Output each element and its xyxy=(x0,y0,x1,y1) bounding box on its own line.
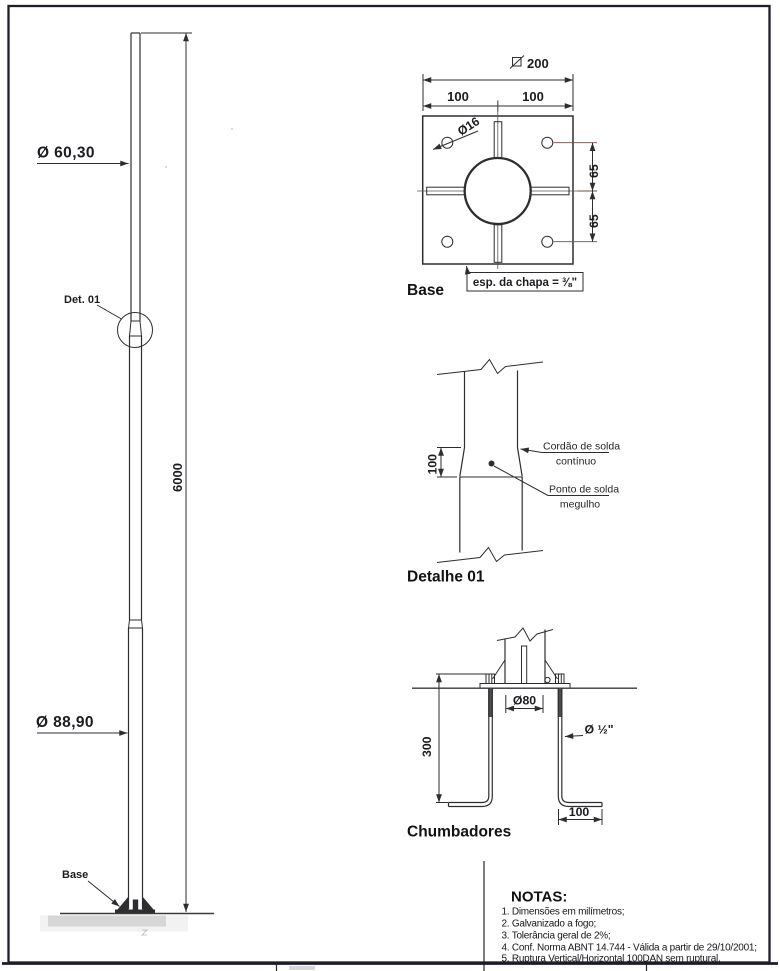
offset-lower-text: 65 xyxy=(587,214,601,228)
continuous-weld-label-2: contínuo xyxy=(556,456,596,468)
scan-artifacts xyxy=(142,128,233,935)
detail-callout-circle xyxy=(97,305,153,348)
base-callout-label: Base xyxy=(62,869,88,881)
pole-elevation-outline xyxy=(129,33,143,909)
base-half-dim-left-text: 100 xyxy=(447,89,469,104)
sheet-border xyxy=(9,6,770,963)
plug-weld-dot xyxy=(489,461,495,467)
anchor-dim-300 xyxy=(436,674,486,803)
offset-upper-text: 65 xyxy=(587,164,601,178)
bottom-diameter-label: Ø 88,90 xyxy=(36,714,94,731)
ground-line xyxy=(40,914,214,932)
anchor-pole-stub xyxy=(412,628,637,688)
notes-heading: NOTAS: xyxy=(511,889,567,906)
drawing-sheet: Det. 01 6000 Ø 60,30 Ø 88,90 Base 200 xyxy=(0,0,780,971)
base-view-title: Base xyxy=(407,282,444,299)
base-half-dim-right-text: 100 xyxy=(522,89,544,104)
continuous-weld-label-1: Cordão de solda xyxy=(543,441,620,453)
title-block-top xyxy=(2,964,778,971)
thickness-note-text: esp. da chapa = ⅜" xyxy=(473,277,577,289)
technical-drawing-svg: Det. 01 6000 Ø 60,30 Ø 88,90 Base 200 xyxy=(0,0,780,971)
hook-dim-text: 100 xyxy=(569,805,590,819)
square-symbol-icon xyxy=(510,56,524,69)
base-overall-dim-text: 200 xyxy=(527,56,549,71)
pole-base-plate xyxy=(115,897,155,915)
height-dim-text: 6000 xyxy=(170,463,185,492)
note-item-2: 2. Galvanizado a fogo; xyxy=(502,919,597,930)
top-diameter-label: Ø 60,30 xyxy=(37,145,95,162)
note-item-1: 1. Dimensões em milímetros; xyxy=(502,907,625,918)
depth-dim-text: 300 xyxy=(420,736,434,757)
pole-section-circle xyxy=(465,158,531,224)
detail-callout-label: Det. 01 xyxy=(64,294,100,306)
base-callout-leader xyxy=(88,881,120,907)
overlap-dim-text: 100 xyxy=(426,454,440,475)
bolt-diameter-leader xyxy=(565,736,583,737)
plug-weld-label-1: Ponto de solda xyxy=(549,484,619,496)
note-item-4: 4. Conf. Norma ABNT 14.744 - Válida a pa… xyxy=(502,943,757,954)
bolt-diameter-text: Ø ½" xyxy=(585,723,614,737)
detail-dim-100 xyxy=(437,448,461,478)
bolt-circle-dim-text: Ø80 xyxy=(513,694,536,708)
anchor-view-title: Chumbadores xyxy=(407,824,511,841)
detail-view-title: Detalhe 01 xyxy=(407,569,485,586)
note-item-3: 3. Tolerância geral de 2%; xyxy=(502,931,611,942)
plug-weld-label-2: megulho xyxy=(560,499,600,511)
